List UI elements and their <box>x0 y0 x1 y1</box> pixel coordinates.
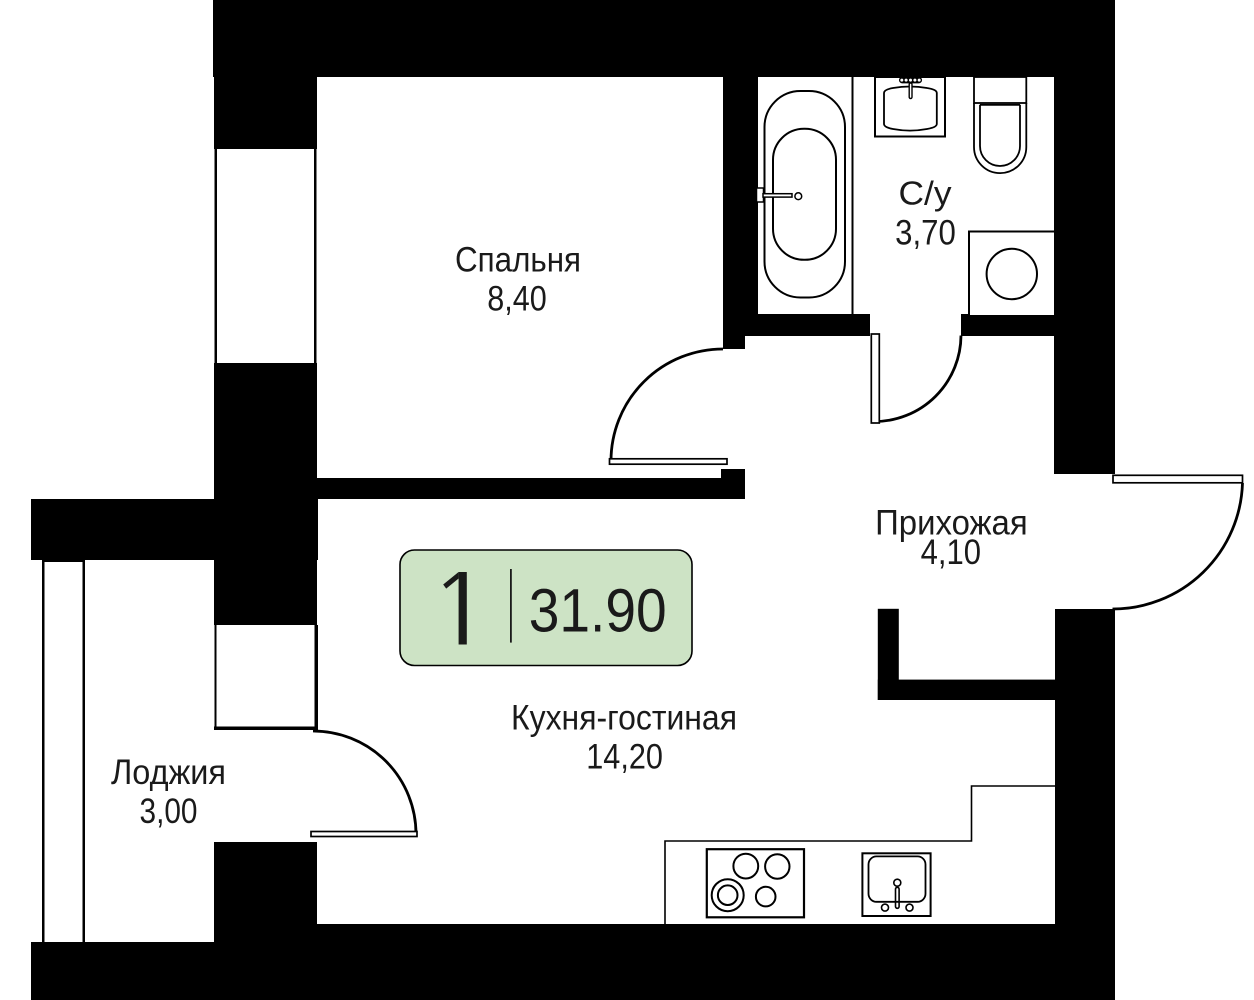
svg-text:С/у: С/у <box>899 175 953 212</box>
svg-text:Лоджия: Лоджия <box>111 753 226 792</box>
svg-text:8,40: 8,40 <box>487 279 547 318</box>
svg-text:3,70: 3,70 <box>895 214 956 253</box>
svg-text:Спальня: Спальня <box>455 241 581 280</box>
svg-text:Кухня-гостиная: Кухня-гостиная <box>511 699 737 738</box>
svg-text:31.90: 31.90 <box>529 576 667 644</box>
svg-text:14,20: 14,20 <box>586 738 663 777</box>
svg-text:3,00: 3,00 <box>140 792 198 831</box>
svg-text:4,10: 4,10 <box>921 533 981 572</box>
